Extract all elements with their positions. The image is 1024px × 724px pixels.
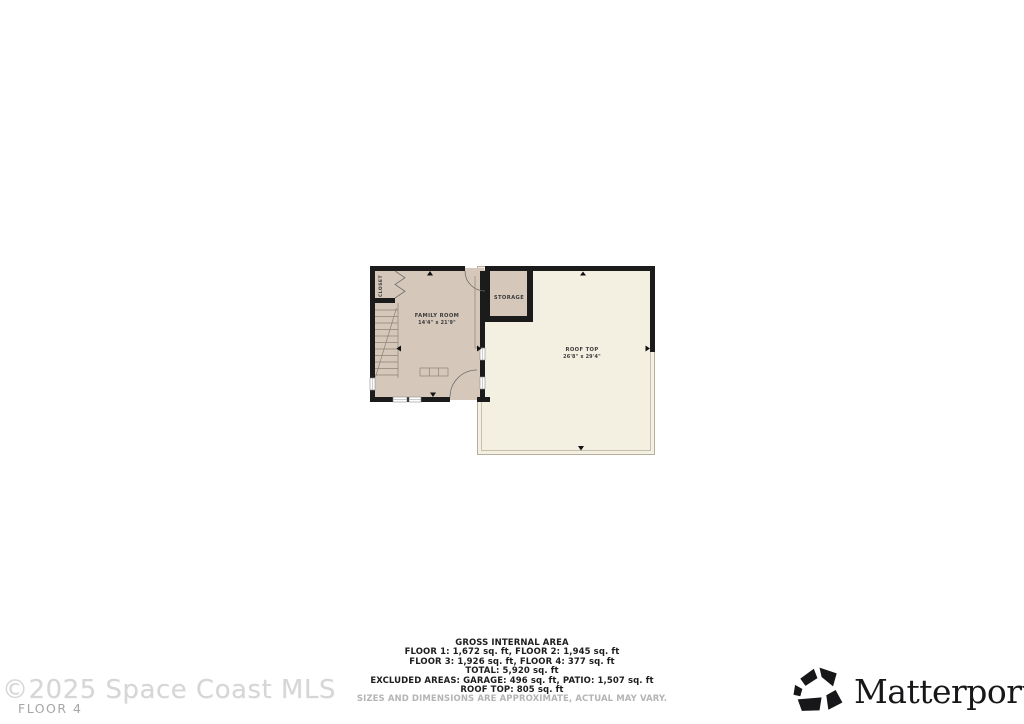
closet-label: CLOSET bbox=[378, 275, 384, 297]
matterport-wordmark: Matterport bbox=[854, 675, 1024, 708]
matterport-logo-icon bbox=[793, 663, 845, 715]
window bbox=[480, 377, 485, 389]
roof-top-dimensions: 26'8" x 29'4" bbox=[563, 354, 601, 360]
page: CLOSET FAMILY ROOM 14'4" x 21'9" STORAGE… bbox=[0, 0, 1024, 724]
storage-label: STORAGE bbox=[494, 295, 524, 301]
window bbox=[393, 397, 407, 402]
window bbox=[370, 378, 375, 390]
family-room-label: FAMILY ROOM bbox=[415, 313, 460, 319]
matterport-branding: Matterport bbox=[793, 662, 1024, 716]
window bbox=[480, 348, 485, 360]
floor-number-label: FLOOR 4 bbox=[18, 701, 83, 716]
roof-top-label: ROOF TOP bbox=[565, 347, 598, 353]
family-room-dimensions: 14'4" x 21'9" bbox=[418, 320, 456, 326]
window bbox=[409, 397, 421, 402]
floor-plan: CLOSET FAMILY ROOM 14'4" x 21'9" STORAGE… bbox=[360, 255, 670, 465]
